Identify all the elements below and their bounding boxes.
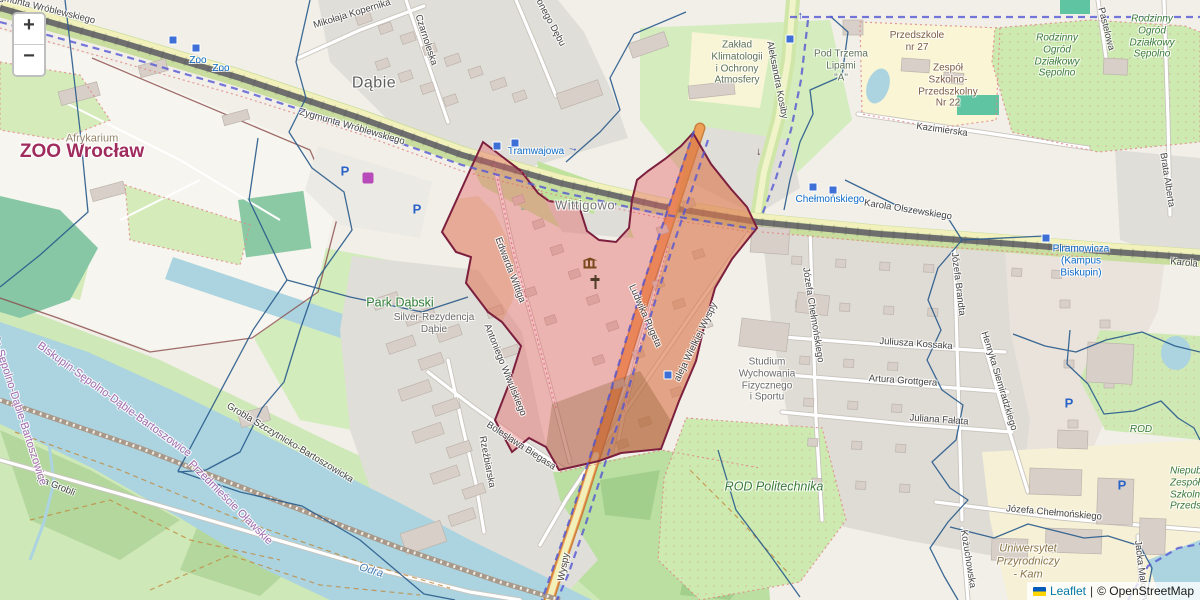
base-map-svg	[0, 0, 1200, 600]
attribution-bar: Leaflet | © OpenStreetMap	[1027, 582, 1200, 600]
map-viewport[interactable]: Zygmunta WróblewskiegoZygmunta Wróblewsk…	[0, 0, 1200, 600]
zoom-control: + −	[12, 12, 46, 77]
ukraine-flag-icon	[1033, 587, 1046, 596]
openstreetmap-link[interactable]: © OpenStreetMap	[1097, 584, 1194, 598]
zoom-out-button[interactable]: −	[14, 45, 44, 75]
zoom-in-button[interactable]: +	[14, 14, 44, 45]
attribution-separator: |	[1090, 584, 1093, 598]
leaflet-link[interactable]: Leaflet	[1050, 584, 1086, 598]
